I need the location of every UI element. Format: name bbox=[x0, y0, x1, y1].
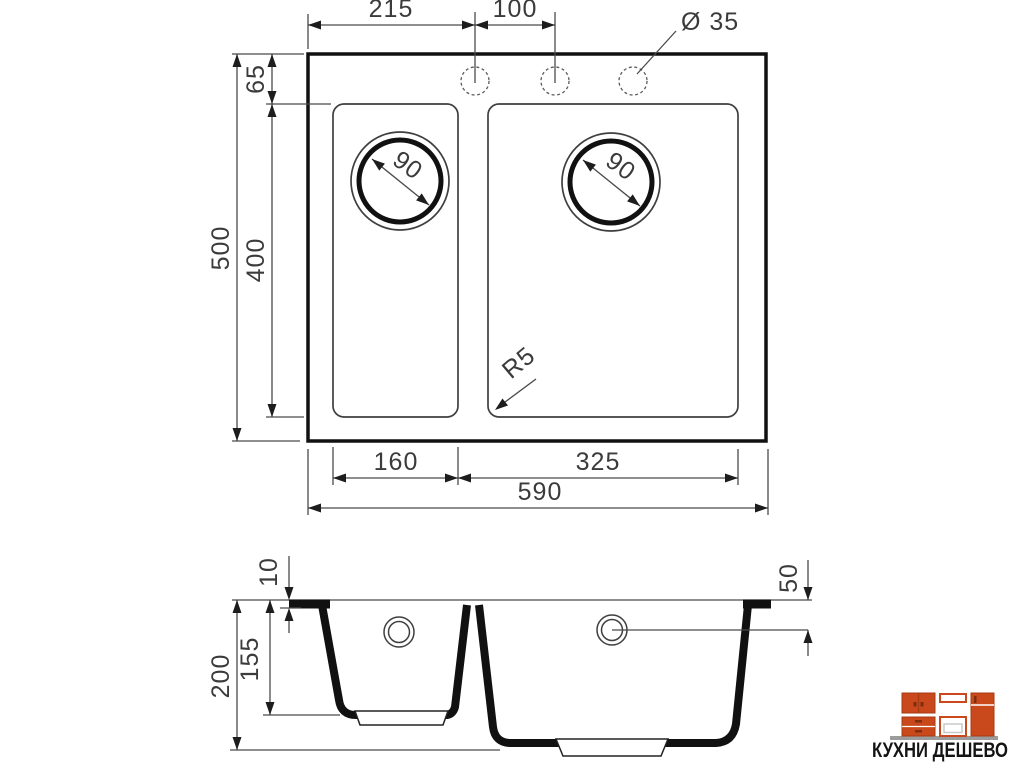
dim-left-bowl-width: 160 bbox=[333, 447, 458, 485]
dim-right-bowl-width: 325 bbox=[458, 448, 738, 485]
dim-hole-spacing: 100 bbox=[475, 0, 555, 30]
dim-rim-to-bowl: 65 bbox=[232, 54, 331, 104]
sink-outline bbox=[308, 54, 766, 441]
right-drain: 90 bbox=[562, 133, 660, 231]
logo-text: КУХНИ ДЕШЕВО bbox=[872, 739, 1008, 762]
technical-drawing-svg: 90 90 215 100 Ø 35 bbox=[0, 0, 1024, 768]
dim-590-label: 590 bbox=[518, 478, 563, 506]
sink-dimension-drawing: 90 90 215 100 Ø 35 bbox=[0, 0, 1024, 768]
right-bowl-left-wall bbox=[479, 605, 560, 743]
left-drain: 90 bbox=[351, 132, 449, 230]
dim-160-label: 160 bbox=[374, 448, 419, 476]
left-bowl-right-wall bbox=[442, 605, 467, 715]
arrowhead bbox=[580, 157, 596, 172]
logo: КУХНИ ДЕШЕВО bbox=[872, 693, 1008, 762]
dim-hole-dia-label: Ø 35 bbox=[681, 8, 739, 36]
logo-kitchen-icon bbox=[890, 693, 998, 740]
icon-shelf bbox=[940, 694, 966, 702]
dim-drain-left-label: 90 bbox=[387, 145, 428, 185]
faucet-hole-3 bbox=[619, 67, 647, 95]
dim-400-label: 400 bbox=[242, 238, 270, 283]
dim-100-label: 100 bbox=[493, 0, 538, 23]
callout-corner-radius: R5 bbox=[492, 341, 541, 413]
dim-bowl-depth: 400 bbox=[242, 104, 304, 417]
dim-325-label: 325 bbox=[576, 448, 621, 476]
left-drain-flange bbox=[355, 711, 448, 725]
dim-r5-label: R5 bbox=[497, 341, 541, 384]
dim-155-label: 155 bbox=[236, 637, 264, 682]
dim-200-label: 200 bbox=[207, 654, 235, 699]
dim-500-label: 500 bbox=[207, 226, 235, 271]
right-bowl-right-wall bbox=[662, 605, 748, 743]
dim-50-label: 50 bbox=[775, 563, 803, 593]
dim-10-label: 10 bbox=[255, 557, 283, 587]
right-drain-flange bbox=[556, 739, 668, 756]
arrowhead bbox=[369, 156, 385, 171]
section-view: 10 50 155 200 bbox=[207, 556, 813, 756]
dim-215-label: 215 bbox=[369, 0, 414, 23]
dim-drain-offset: 50 bbox=[775, 560, 813, 656]
callout-hole-diameter: Ø 35 bbox=[637, 8, 739, 74]
top-view: 90 90 215 100 Ø 35 bbox=[207, 0, 768, 515]
dim-rim-thickness: 10 bbox=[255, 556, 301, 633]
dim-drain-right-label: 90 bbox=[600, 146, 641, 186]
dim-65-label: 65 bbox=[242, 64, 270, 94]
left-bowl-wall bbox=[322, 605, 361, 715]
